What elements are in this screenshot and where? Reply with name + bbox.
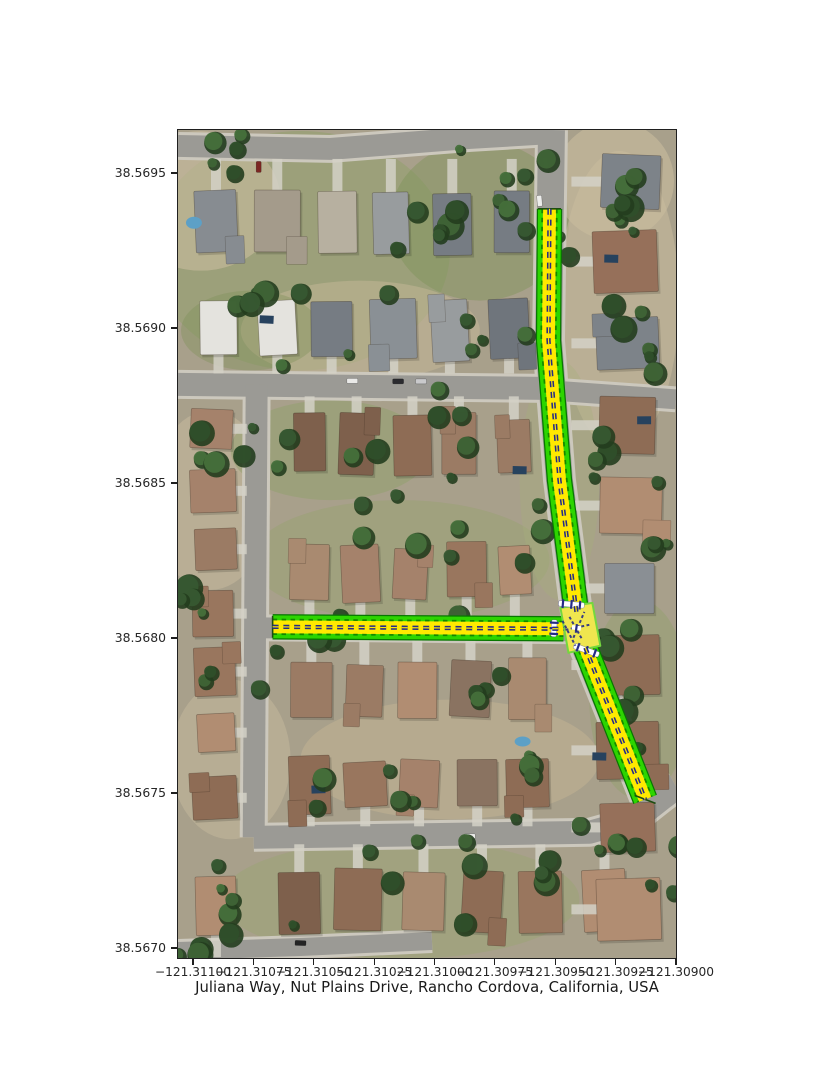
parked-car [347, 378, 358, 383]
parked-car [295, 940, 306, 945]
parked-car [416, 379, 427, 384]
house-roof [605, 563, 655, 613]
house-roof [318, 191, 358, 253]
aerial-map-image [178, 130, 676, 958]
street-middle [178, 384, 545, 388]
house-roof [333, 868, 382, 931]
solar-panel [513, 466, 527, 474]
x-axis-tick-label: −121.30900 [634, 966, 718, 978]
house-roof [343, 761, 388, 808]
y-axis-tickmark [171, 792, 177, 793]
house-roof [393, 415, 432, 476]
y-axis-tickmark [171, 327, 177, 328]
y-axis-tickmark [171, 482, 177, 483]
y-axis-tick-label: 38.5680 [104, 632, 166, 644]
map-plot-area [177, 129, 677, 959]
house-roof [398, 662, 437, 719]
solar-panel [592, 752, 606, 760]
y-axis-tick-label: 38.5685 [104, 477, 166, 489]
house-roof [340, 544, 381, 603]
y-axis-tick-label: 38.5690 [104, 322, 166, 334]
pool [186, 217, 202, 229]
figure-canvas: 38.569538.569038.568538.568038.567538.56… [0, 0, 828, 1080]
y-axis-tickmark [171, 637, 177, 638]
y-axis-tick-label: 38.5675 [104, 787, 166, 799]
house-roof [592, 230, 658, 294]
house-roof [457, 759, 497, 806]
y-axis-tickmark [171, 947, 177, 948]
solar-panel [604, 255, 618, 263]
house-roof [290, 662, 332, 717]
y-axis-tick-label: 38.5670 [104, 942, 166, 954]
y-axis-tickmark [171, 172, 177, 173]
pool [515, 737, 531, 747]
parked-car [393, 379, 404, 384]
parked-car [537, 195, 543, 206]
y-axis-tick-label: 38.5695 [104, 167, 166, 179]
house-roof [402, 872, 445, 931]
solar-panel [259, 315, 273, 324]
solar-panel [637, 416, 651, 424]
map-title: Juliana Way, Nut Plains Drive, Rancho Co… [177, 979, 677, 996]
house-roof [194, 528, 237, 571]
parked-car [256, 161, 261, 172]
house-roof [196, 713, 235, 753]
house-roof [311, 301, 353, 357]
